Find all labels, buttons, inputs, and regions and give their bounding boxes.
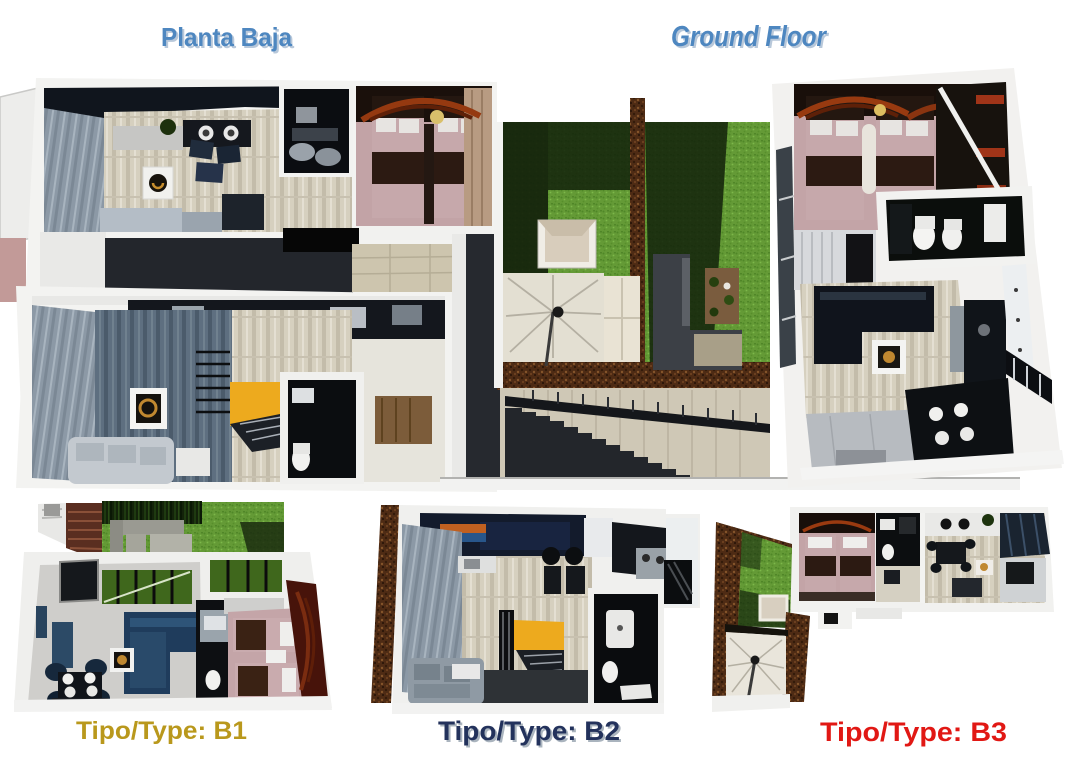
- svg-text:Tipo/Type: B2: Tipo/Type: B2: [438, 716, 620, 746]
- svg-text:Tipo/Type: B3: Tipo/Type: B3: [820, 717, 1007, 747]
- svg-text:Ground Floor: Ground Floor: [671, 21, 827, 53]
- svg-text:Tipo/Type: B1: Tipo/Type: B1: [76, 717, 247, 745]
- svg-text:Planta Baja: Planta Baja: [161, 22, 293, 52]
